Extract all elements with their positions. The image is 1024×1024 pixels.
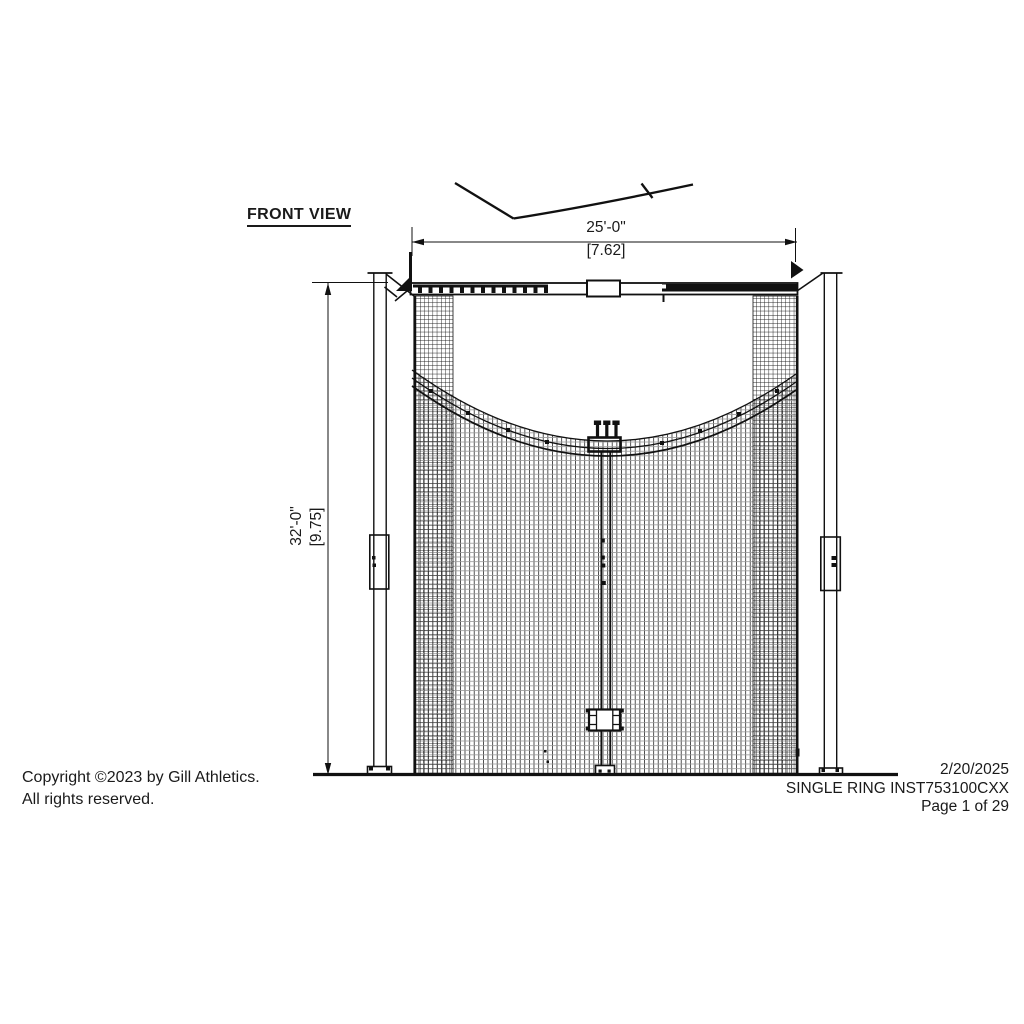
page-title: FRONT VIEW (247, 206, 351, 227)
turnbuckle (586, 709, 624, 731)
document-id: SINGLE RING INST753100CXX (786, 780, 1009, 799)
rail-splice-sleeve (587, 281, 620, 297)
arrow-up-icon (325, 283, 331, 295)
net-mesh-interior (414, 296, 798, 775)
height-dim-metric-label: [9.75] (308, 497, 326, 557)
copyright-block: Copyright ©2023 by Gill Athletics. All r… (22, 767, 260, 810)
drawing-page: FRONT VIEW 25'-0" [7.62] 32'-0" [9.75] C… (0, 0, 1024, 1024)
height-dim-imperial-label: 32'-0" (288, 496, 306, 556)
right-brace (797, 273, 823, 291)
net-mesh-right-strip (753, 296, 800, 775)
right-pole (820, 273, 843, 775)
page-number: Page 1 of 29 (786, 798, 1009, 817)
document-date: 2/20/2025 (786, 761, 1009, 780)
width-dim-metric-label: [7.62] (570, 242, 642, 260)
right-pulley-flag (791, 261, 804, 279)
front-view-drawing (0, 0, 1024, 1024)
left-pole (368, 273, 393, 775)
copyright-line2: All rights reserved. (22, 789, 260, 811)
net-mesh-left-strip (414, 296, 453, 775)
rail-slat-track (413, 285, 548, 294)
clamp-bolts (594, 421, 620, 439)
copyright-line1: Copyright ©2023 by Gill Athletics. (22, 767, 260, 789)
net-flap-outline (455, 183, 693, 219)
width-dim-imperial-label: 25'-0" (570, 219, 642, 237)
document-info-block: 2/20/2025 SINGLE RING INST753100CXX Page… (786, 761, 1009, 817)
arrow-left-icon (412, 239, 424, 245)
